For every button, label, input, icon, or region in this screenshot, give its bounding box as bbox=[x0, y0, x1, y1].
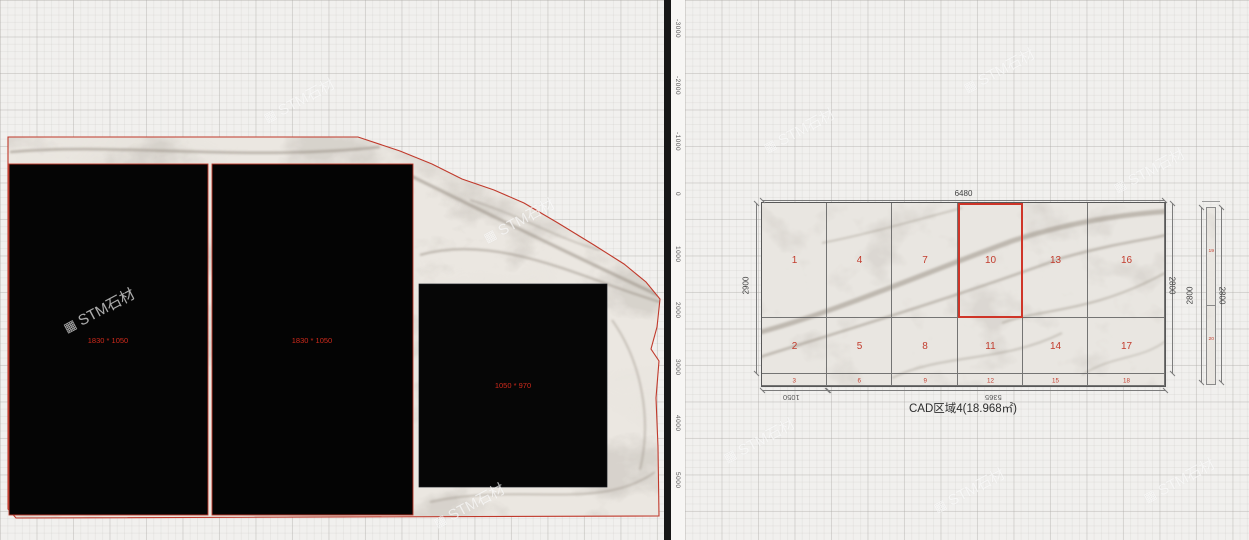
dim-bottom-left-label: 1050 bbox=[783, 393, 800, 402]
dim-line-left bbox=[756, 203, 757, 374]
cad-tile-18[interactable]: 18 bbox=[1088, 374, 1165, 386]
dim-right-label: 2800 bbox=[1167, 277, 1176, 295]
slab-viewport[interactable]: 1830 * 1050 1830 * 1050 1050 * 970 bbox=[0, 0, 664, 540]
ruler-tick-label: 3000 bbox=[674, 359, 681, 375]
side-strip-number-top: 19 bbox=[1209, 248, 1214, 254]
side-strip-number-bottom: 20 bbox=[1209, 336, 1214, 342]
cad-tile-3[interactable]: 3 bbox=[762, 374, 827, 386]
cad-tile-6[interactable]: 6 bbox=[827, 374, 892, 386]
tile-number: 15 bbox=[1052, 376, 1059, 383]
cad-tile-9[interactable]: 9 bbox=[892, 374, 958, 386]
tile-number: 8 bbox=[922, 341, 928, 352]
side-strip-marble bbox=[1207, 208, 1215, 384]
tile-number: 16 bbox=[1121, 255, 1132, 266]
tile-number: 7 bbox=[922, 255, 928, 266]
side-dim-left-label: 2800 bbox=[1185, 287, 1194, 305]
side-elevation-strip[interactable]: 19 20 bbox=[1206, 207, 1216, 385]
tile-number: 4 bbox=[857, 255, 863, 266]
ruler-tick-label: 0 bbox=[674, 192, 681, 196]
tile-number: 6 bbox=[858, 376, 861, 383]
tile-number: 12 bbox=[987, 376, 994, 383]
dim-line-bottom-left bbox=[762, 390, 828, 391]
tile-number: 17 bbox=[1121, 341, 1132, 352]
tile-number: 3 bbox=[793, 376, 796, 383]
cad-tile-grid: 1 4 7 10 13 16 2 5 8 11 14 17 3 6 9 12 1… bbox=[762, 203, 1165, 386]
piece-size-label-3: 1050 * 970 bbox=[495, 381, 531, 390]
vertical-ruler: -3000 -2000 -1000 0 1000 2000 3000 4000 … bbox=[671, 0, 686, 540]
cad-region-caption: CAD区域4(18.968㎡) bbox=[813, 400, 1113, 416]
side-dim-right-label: 2800 bbox=[1217, 287, 1226, 305]
tile-number: 11 bbox=[985, 341, 995, 352]
cad-tile-2[interactable]: 2 bbox=[762, 318, 827, 374]
cad-tile-12[interactable]: 12 bbox=[958, 374, 1023, 386]
tile-number: 9 bbox=[923, 376, 926, 383]
cad-tile-1[interactable]: 1 bbox=[762, 203, 827, 318]
side-strip-top-tick bbox=[1202, 201, 1220, 202]
ruler-tick-label: -3000 bbox=[674, 19, 681, 38]
app-root: { "colors": { "accent_red": "#c0392b", "… bbox=[0, 0, 1249, 540]
dim-line-top bbox=[762, 200, 1165, 201]
dim-top-label: 6480 bbox=[762, 189, 1165, 198]
ruler-tick-label: 4000 bbox=[674, 415, 681, 431]
piece-size-label-1: 1830 * 1050 bbox=[88, 336, 128, 345]
cad-tile-8[interactable]: 8 bbox=[892, 318, 958, 374]
ruler-tick-label: -2000 bbox=[674, 76, 681, 95]
cad-tile-5[interactable]: 5 bbox=[827, 318, 892, 374]
cad-region-drawing: 1 4 7 10 13 16 2 5 8 11 14 17 3 6 9 12 1… bbox=[762, 203, 1165, 386]
cad-tile-4[interactable]: 4 bbox=[827, 203, 892, 318]
side-strip-divider bbox=[1207, 305, 1215, 306]
tile-number: 1 bbox=[792, 255, 798, 266]
cad-viewport[interactable]: 1 4 7 10 13 16 2 5 8 11 14 17 3 6 9 12 1… bbox=[685, 0, 1249, 540]
slab-canvas: 1830 * 1050 1830 * 1050 1050 * 970 bbox=[0, 0, 664, 540]
cad-tile-11[interactable]: 11 bbox=[958, 318, 1023, 374]
cad-tile-15[interactable]: 15 bbox=[1023, 374, 1088, 386]
side-dim-line-left bbox=[1201, 207, 1202, 383]
tile-number: 10 bbox=[985, 255, 996, 266]
ruler-tick-label: 2000 bbox=[674, 302, 681, 318]
cad-tile-7[interactable]: 7 bbox=[892, 203, 958, 318]
panel-divider[interactable] bbox=[664, 0, 671, 540]
dim-left-label: 2900 bbox=[741, 277, 750, 295]
cad-tile-16[interactable]: 16 bbox=[1088, 203, 1165, 318]
cad-tile-10-selected[interactable]: 10 bbox=[958, 203, 1023, 318]
cad-tile-13[interactable]: 13 bbox=[1023, 203, 1088, 318]
tile-number: 14 bbox=[1050, 341, 1061, 352]
piece-size-label-2: 1830 * 1050 bbox=[292, 336, 332, 345]
tile-number: 5 bbox=[857, 341, 863, 352]
cad-tile-17[interactable]: 17 bbox=[1088, 318, 1165, 374]
tile-number: 18 bbox=[1123, 376, 1130, 383]
ruler-tick-label: 1000 bbox=[674, 246, 681, 262]
ruler-tick-label: -1000 bbox=[674, 132, 681, 151]
cad-tile-14[interactable]: 14 bbox=[1023, 318, 1088, 374]
tile-number: 2 bbox=[792, 341, 798, 352]
tile-number: 13 bbox=[1050, 255, 1061, 266]
dim-line-bottom-right bbox=[828, 390, 1166, 391]
ruler-tick-label: 5000 bbox=[674, 472, 681, 488]
